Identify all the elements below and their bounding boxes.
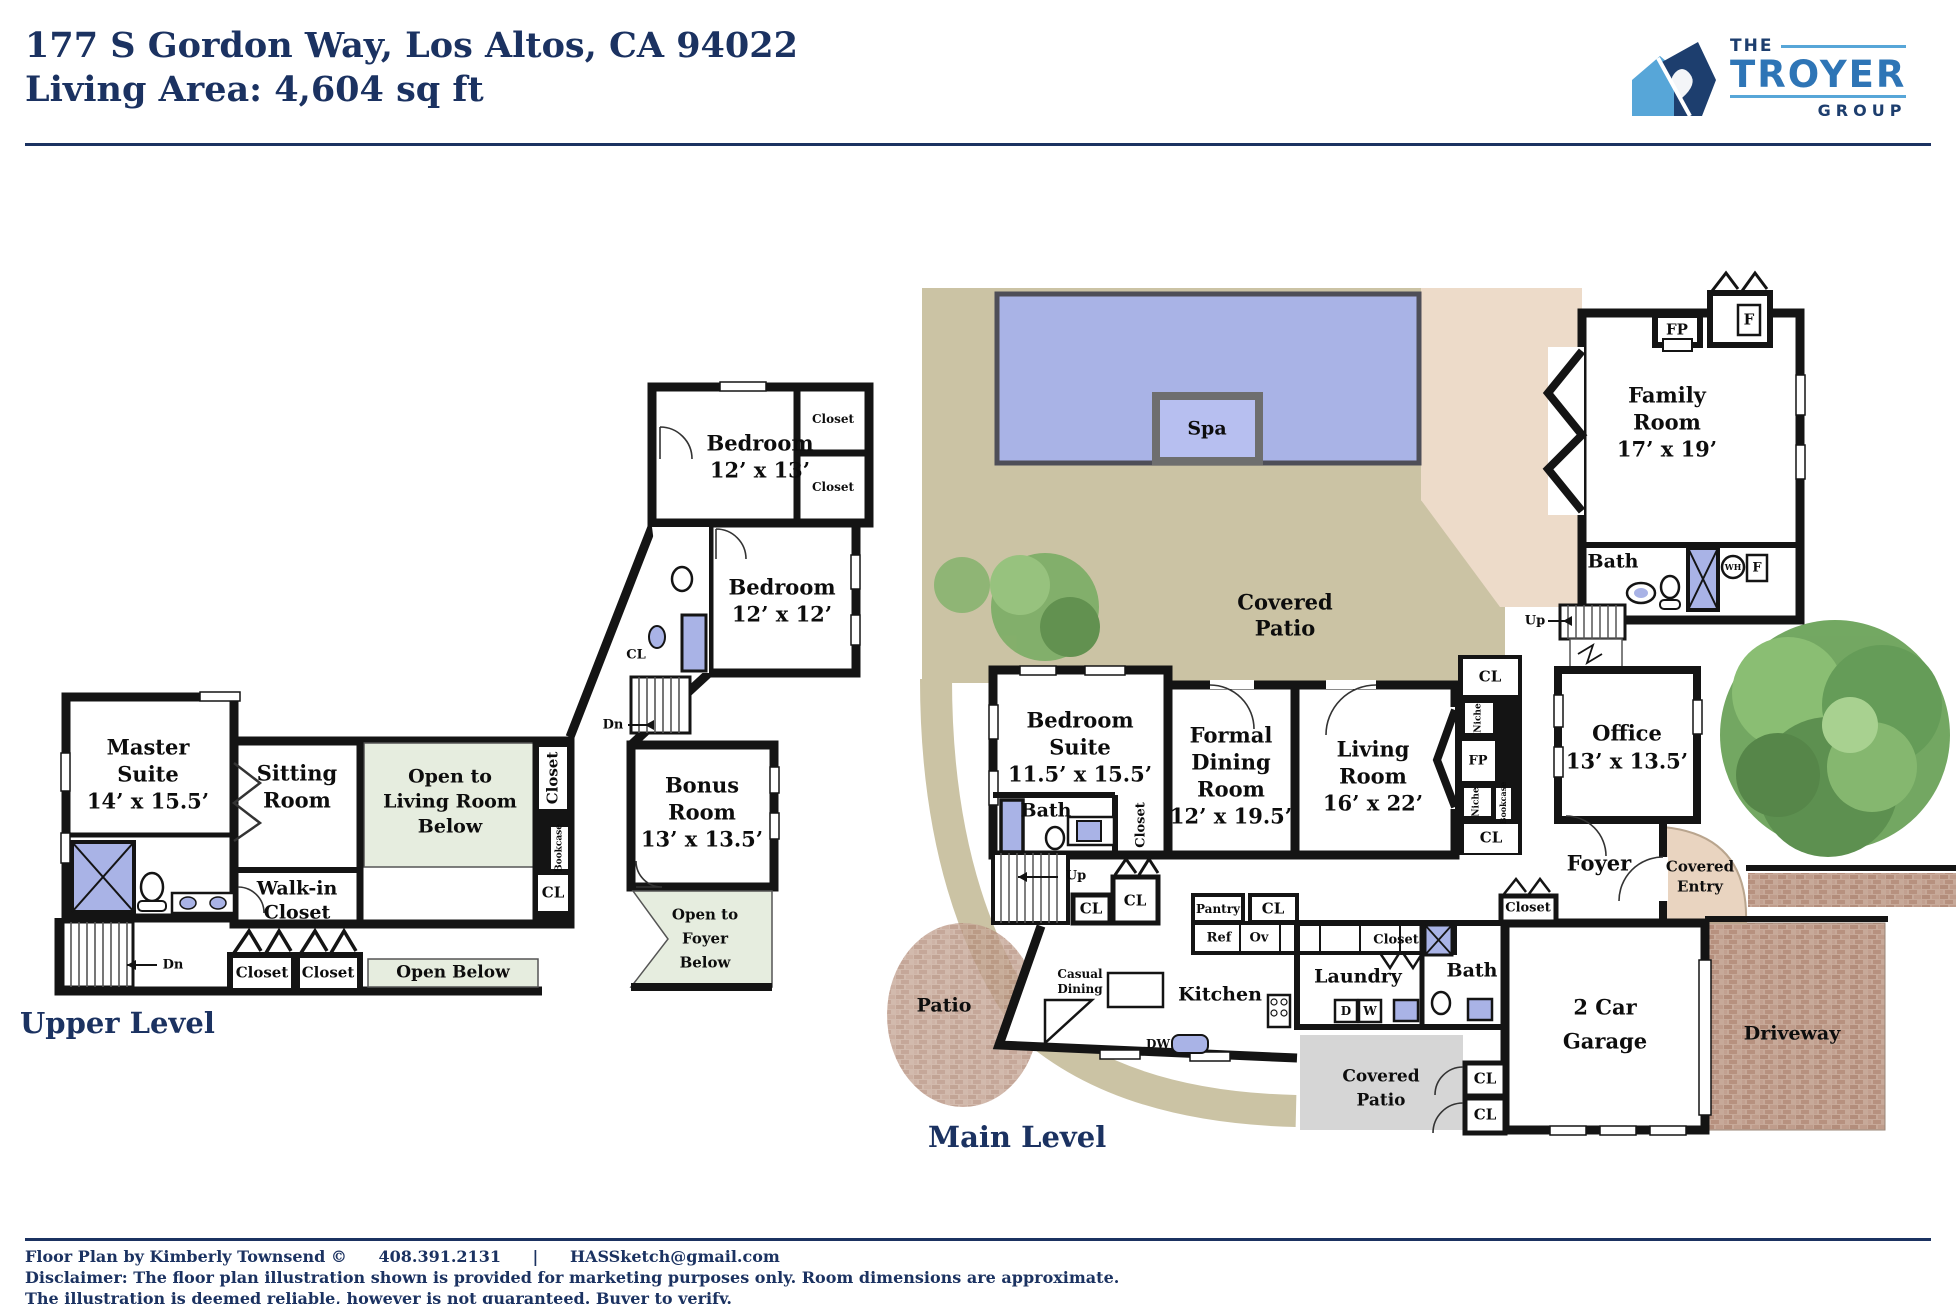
office-label: Office [1592, 723, 1662, 744]
bathtub-icon [682, 615, 706, 671]
family-room-label: Family [1628, 385, 1706, 406]
fp-strip-label: FP [1468, 755, 1487, 768]
pantry-label: Pantry [1196, 903, 1240, 915]
cl-pantry-label: CL [1262, 902, 1285, 917]
covered-patio-label2: Patio [1255, 618, 1316, 639]
niche-label: Niche [1475, 703, 1484, 732]
footer-separator: | [533, 1247, 539, 1266]
formal-dining-dims: 12’ x 19.5’ [1170, 806, 1292, 827]
ref-label: Ref [1207, 932, 1232, 945]
bookcase-label: Bookcase [1499, 782, 1507, 825]
covered-patio-b-label: Covered [1342, 1069, 1419, 1086]
f-label-top: F [1744, 313, 1755, 328]
closet-a-label: Closet [236, 966, 289, 981]
family-room-label2: Room [1633, 412, 1701, 433]
closet-d-label: Closet [812, 481, 854, 493]
closet-c-label: Closet [812, 413, 854, 425]
footer-phone: 408.391.2131 [378, 1247, 500, 1266]
cl-bath-label: CL [626, 649, 646, 662]
room-label-master: Master [107, 737, 190, 758]
room-label-bedroom2: Bedroom [728, 577, 835, 598]
cl-garage2-label: CL [1474, 1108, 1497, 1123]
cl-garage1-label: CL [1474, 1072, 1497, 1087]
staircase-up-left [993, 853, 1068, 923]
room-dims-bedroom1: 12’ x 13’ [710, 460, 810, 481]
wh-label: WH [1725, 563, 1742, 571]
room-label-sitting: Sitting [257, 763, 337, 784]
washer-label: W [1363, 1005, 1376, 1017]
cl-strip-top-label: CL [1479, 670, 1502, 685]
room-dims-bonus: 13’ x 13.5’ [641, 829, 763, 850]
open-living-label2: Living Room [383, 793, 517, 812]
open-foyer-label2: Foyer [682, 932, 728, 947]
room-label-walkin2: Closet [264, 904, 331, 923]
cl-a-label: CL [1080, 902, 1103, 917]
family-room-dims: 17’ x 19’ [1617, 439, 1717, 460]
cl-label: CL [542, 886, 565, 901]
bookcase-label: Bookcase [556, 824, 565, 872]
spa-label: Spa [1187, 420, 1226, 439]
toilet-icon [672, 567, 692, 591]
casual-dining-label: Casual [1057, 968, 1102, 980]
upper-level-title: Upper Level [20, 1006, 215, 1040]
garage-label2: Garage [1563, 1031, 1647, 1052]
family-bath-label: Bath [1588, 553, 1639, 572]
ov-label: Ov [1250, 932, 1269, 945]
up-label-left: Up [1066, 870, 1086, 883]
driveway-label: Driveway [1744, 1025, 1841, 1044]
toilet-icon [141, 873, 163, 901]
front-walkway [1748, 873, 1956, 907]
toilet-icon [1661, 576, 1679, 598]
living-room-dims: 16’ x 22’ [1323, 793, 1423, 814]
page-title: 177 S Gordon Way, Los Altos, CA 94022 Li… [25, 24, 798, 112]
formal-dining-label2: Dining [1191, 752, 1270, 773]
bedroom-suite-label: Bedroom [1026, 710, 1133, 731]
header-divider [25, 143, 1931, 146]
staircase-down [63, 922, 157, 987]
footer-divider [25, 1238, 1931, 1241]
staircase-up-right [1548, 605, 1625, 669]
logo-group: GROUP [1730, 95, 1906, 120]
suite-bath-label: Bath [1021, 802, 1072, 821]
garage-bath-label: Bath [1447, 962, 1498, 981]
sink-icon [649, 626, 665, 648]
covered-entry-label: Covered [1666, 860, 1734, 875]
sink-icon [210, 897, 226, 909]
staircase-down-right [628, 677, 690, 733]
room-label-master2: Suite [117, 764, 178, 785]
upper-level-plan: Master Suite 14’ x 15.5’ Sitting Room Wa… [30, 365, 890, 1015]
room-dims-bedroom2: 12’ x 12’ [732, 604, 832, 625]
main-level-plan: Spa Covered Patio Family Room 17’ x 19’ … [860, 255, 1956, 1175]
dn-label-left: Dn [163, 959, 184, 972]
covered-patio-b-label2: Patio [1357, 1093, 1406, 1110]
room-dims-master: 14’ x 15.5’ [87, 791, 209, 812]
foyer-closet-label: Closet [1505, 902, 1551, 915]
living-room-label2: Room [1339, 766, 1407, 787]
formal-dining-label3: Room [1197, 779, 1265, 800]
tree-icon [1720, 620, 1950, 857]
dryer-label: D [1341, 1005, 1351, 1017]
kitchen-sink-icon [1172, 1035, 1208, 1053]
sink-icon [180, 897, 196, 909]
dw-label: DW [1146, 1038, 1170, 1050]
open-living-label3: Below [418, 818, 482, 837]
laundry-closet-label: Closet [1373, 934, 1419, 947]
room-label-bonus: Bonus [665, 775, 739, 796]
room-label-bonus2: Room [668, 802, 736, 823]
kitchen-label: Kitchen [1178, 986, 1262, 1005]
covered-entry-label2: Entry [1677, 880, 1723, 895]
covered-patio-label: Covered [1237, 592, 1332, 613]
footer-credit-line: Floor Plan by Kimberly Townsend © 408.39… [25, 1246, 1119, 1267]
logo-troyer: TROYER [1730, 56, 1906, 95]
sink-icon [1077, 821, 1101, 841]
dn-label-right: Dn [603, 719, 624, 732]
troyer-group-logo: THE TROYER GROUP [1628, 28, 1920, 128]
garage-door [1699, 960, 1711, 1115]
sink-icon [1468, 999, 1492, 1020]
bedroom-suite-dims: 11.5’ x 15.5’ [1008, 764, 1152, 785]
formal-dining-label: Formal [1190, 725, 1273, 746]
open-below-label: Open Below [396, 965, 509, 982]
footer: Floor Plan by Kimberly Townsend © 408.39… [25, 1246, 1119, 1304]
open-foyer-label: Open to [672, 908, 738, 923]
garage [1505, 923, 1705, 1130]
f-label-bath: F [1752, 562, 1761, 575]
bedroom-suite-label2: Suite [1049, 737, 1110, 758]
cl-strip-bot-label: CL [1480, 831, 1503, 846]
sink-icon [1394, 1000, 1418, 1021]
niche-label2: Niche [1473, 787, 1482, 816]
kitchen-island [1108, 973, 1163, 1007]
casual-dining-label2: Dining [1057, 983, 1102, 995]
room-label-bedroom1: Bedroom [706, 433, 813, 454]
main-level-title: Main Level [928, 1120, 1106, 1154]
closet-vertical-label: Closet [546, 752, 561, 805]
footer-disclaimer2: The illustration is deemed reliable, how… [25, 1288, 1119, 1304]
living-area-line: Living Area: 4,604 sq ft [25, 68, 798, 112]
footer-email: HASSketch@gmail.com [570, 1247, 780, 1266]
room-label-walkin: Walk-in [257, 880, 338, 899]
office-dims: 13’ x 13.5’ [1566, 751, 1688, 772]
fp-label: FP [1666, 323, 1688, 338]
footer-disclaimer1: Disclaimer: The floor plan illustration … [25, 1267, 1119, 1288]
floorplan-page: 177 S Gordon Way, Los Altos, CA 94022 Li… [0, 0, 1956, 1304]
suite-closet-label: Closet [1135, 802, 1148, 848]
laundry-label: Laundry [1314, 968, 1402, 987]
address-line: 177 S Gordon Way, Los Altos, CA 94022 [25, 24, 798, 68]
room-label-sitting2: Room [263, 790, 331, 811]
toilet-icon [1046, 827, 1064, 849]
footer-credit: Floor Plan by Kimberly Townsend © [25, 1247, 347, 1266]
logo-house-icon [1628, 36, 1720, 120]
foyer-label: Foyer [1567, 853, 1631, 874]
cl-b-label: CL [1124, 894, 1147, 909]
closet-b-label: Closet [302, 966, 355, 981]
patio-label: Patio [917, 997, 972, 1016]
open-living-label: Open to [408, 768, 492, 787]
open-foyer-label3: Below [680, 956, 731, 971]
living-room-label: Living [1337, 739, 1410, 760]
up-label-right: Up [1525, 615, 1545, 628]
garage-label: 2 Car [1573, 997, 1636, 1018]
toilet-icon [1432, 992, 1450, 1014]
